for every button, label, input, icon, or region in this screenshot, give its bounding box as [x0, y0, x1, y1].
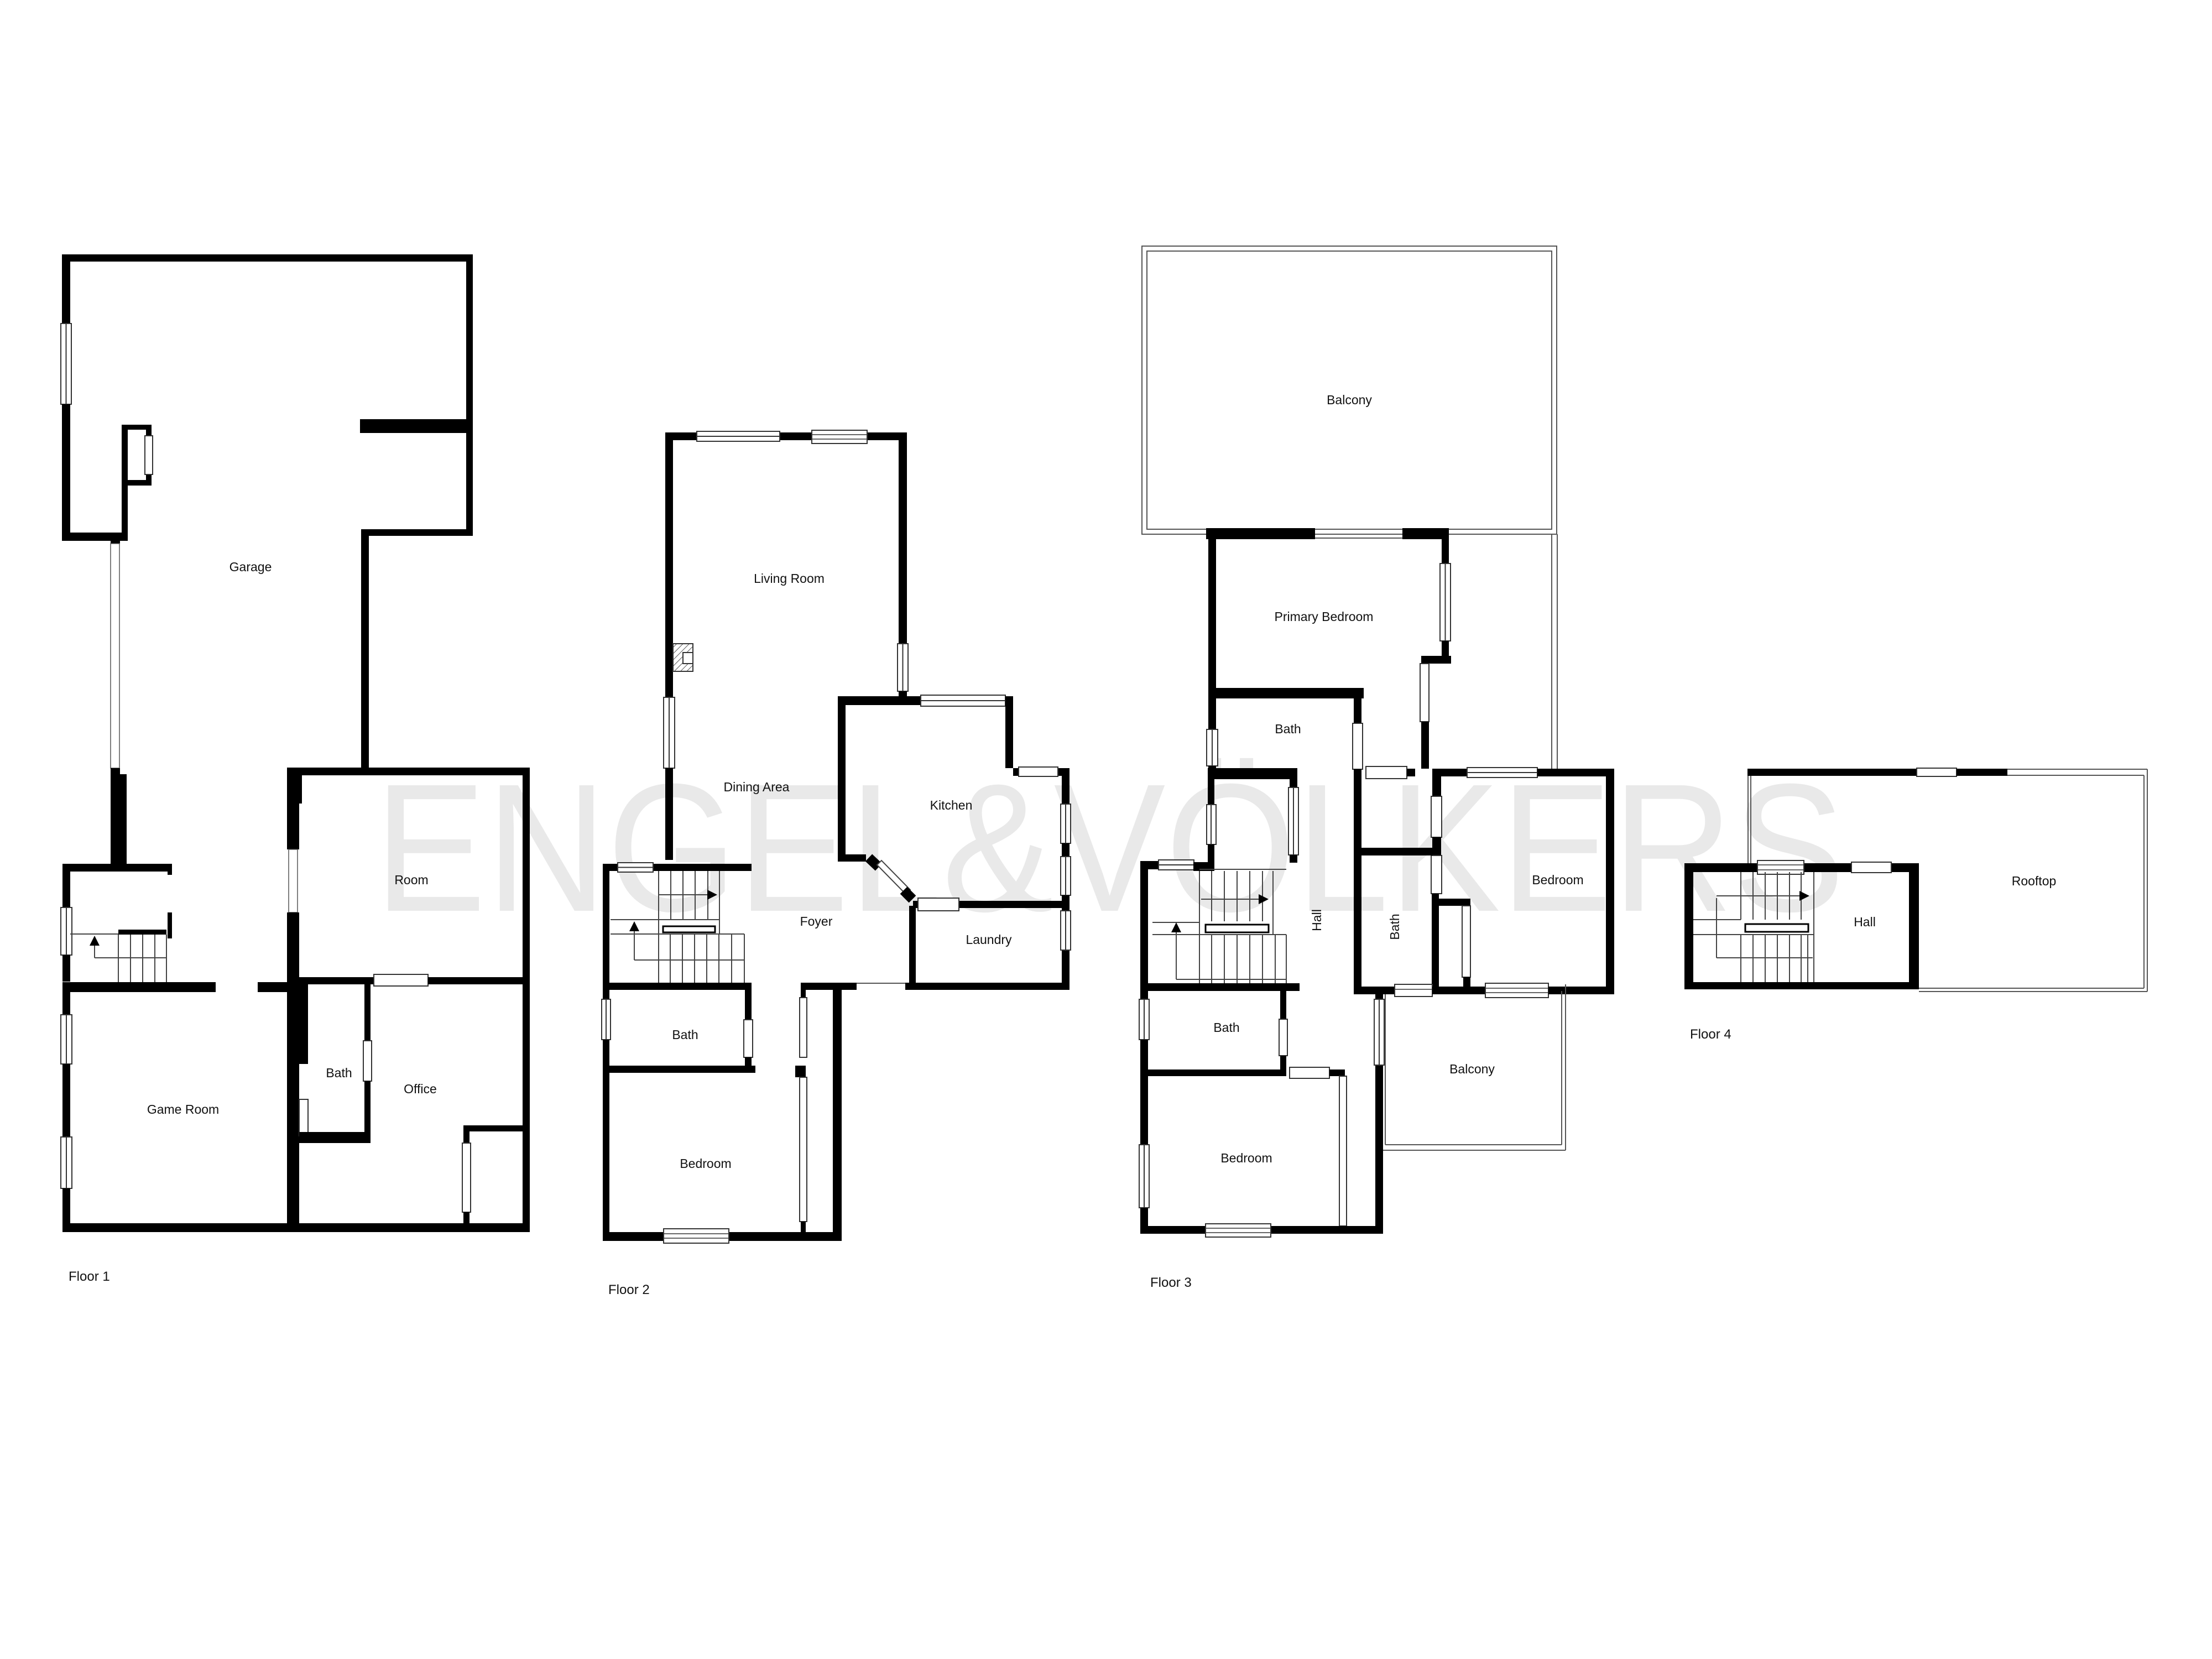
- svg-text:Garage: Garage: [229, 560, 272, 574]
- svg-text:Balcony: Balcony: [1327, 393, 1372, 407]
- svg-text:ENGEL&VÖLKERS: ENGEL&VÖLKERS: [374, 745, 1845, 950]
- svg-text:Floor 3: Floor 3: [1150, 1275, 1192, 1290]
- svg-text:Bath: Bath: [1213, 1020, 1239, 1035]
- svg-text:Kitchen: Kitchen: [930, 798, 973, 812]
- svg-text:Bath: Bath: [326, 1066, 352, 1080]
- svg-text:Rooftop: Rooftop: [2012, 874, 2057, 888]
- svg-text:Hall: Hall: [1854, 915, 1876, 929]
- svg-text:Balcony: Balcony: [1449, 1062, 1495, 1076]
- svg-text:Laundry: Laundry: [966, 932, 1012, 947]
- svg-text:Bath: Bath: [672, 1027, 698, 1042]
- svg-text:Office: Office: [404, 1082, 437, 1096]
- svg-text:Game Room: Game Room: [147, 1102, 219, 1117]
- svg-text:Room: Room: [394, 873, 428, 887]
- svg-text:Bath: Bath: [1275, 722, 1301, 736]
- svg-text:Primary Bedroom: Primary Bedroom: [1275, 609, 1374, 624]
- svg-text:Bath: Bath: [1387, 914, 1402, 940]
- svg-text:Foyer: Foyer: [800, 914, 833, 928]
- svg-text:Floor 2: Floor 2: [608, 1282, 650, 1297]
- svg-text:Bedroom: Bedroom: [1220, 1151, 1272, 1165]
- svg-text:Floor 4: Floor 4: [1690, 1027, 1731, 1042]
- svg-text:Dining Area: Dining Area: [724, 780, 790, 794]
- svg-text:Living Room: Living Room: [754, 571, 825, 586]
- svg-text:Bedroom: Bedroom: [1532, 873, 1583, 887]
- svg-text:Bedroom: Bedroom: [680, 1156, 731, 1171]
- svg-text:Hall: Hall: [1310, 909, 1324, 931]
- svg-text:Floor 1: Floor 1: [69, 1269, 110, 1284]
